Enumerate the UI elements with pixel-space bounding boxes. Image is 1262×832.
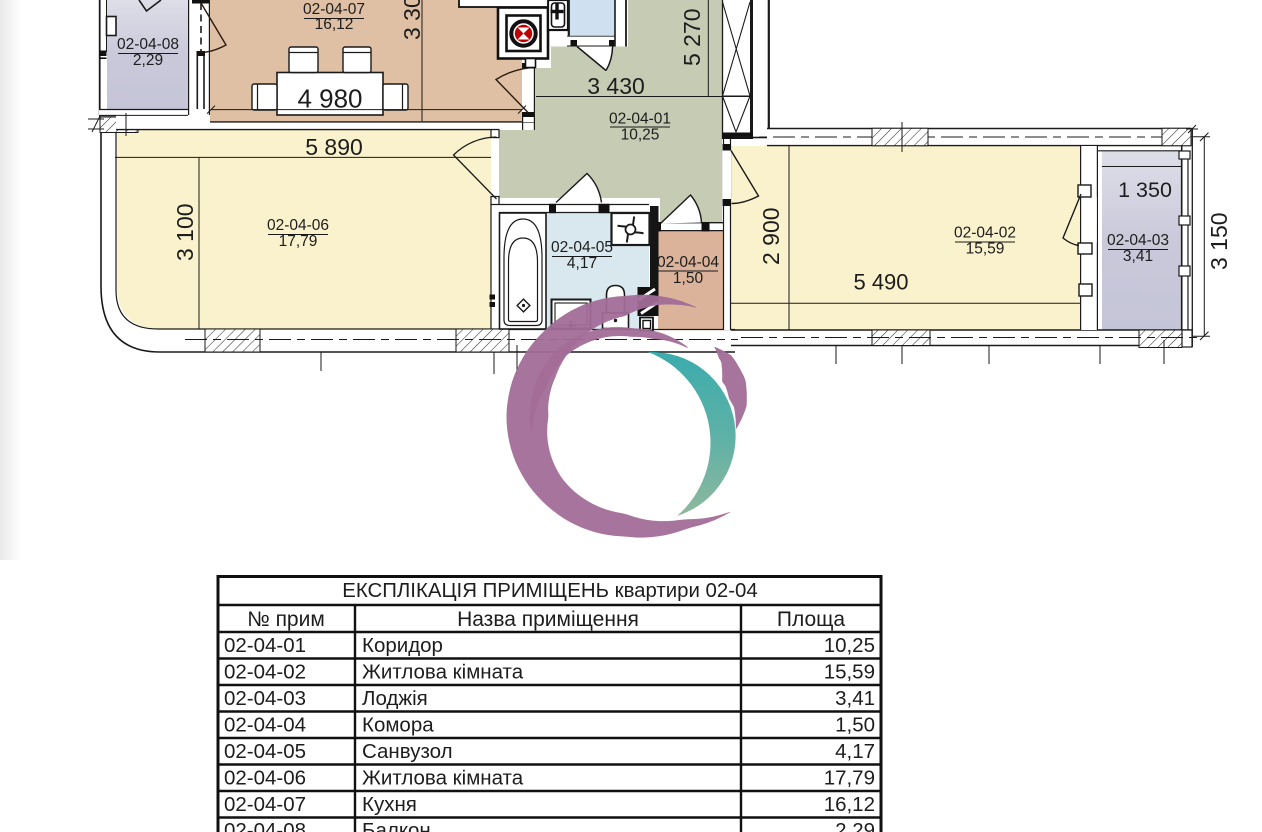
svg-text:2 900: 2 900 [758,207,784,265]
svg-text:02-04-06: 02-04-06 [267,217,329,234]
svg-text:02-04-03: 02-04-03 [1107,232,1169,249]
svg-text:3,41: 3,41 [835,687,875,710]
svg-text:02-04-02: 02-04-02 [954,225,1016,242]
svg-text:15,59: 15,59 [824,661,875,684]
svg-text:Назва приміщення: Назва приміщення [457,608,639,631]
svg-text:Житлова кімната: Житлова кімната [362,767,524,790]
svg-text:3,41: 3,41 [1123,248,1153,265]
svg-text:5 270: 5 270 [679,8,705,66]
svg-text:Балкон: Балкон [362,819,431,832]
svg-text:5 890: 5 890 [305,134,363,160]
svg-text:4,17: 4,17 [835,740,875,763]
svg-text:4 980: 4 980 [297,84,362,114]
svg-text:15,59: 15,59 [966,241,1005,258]
svg-text:Комора: Комора [362,714,434,737]
svg-text:16,12: 16,12 [824,793,875,816]
svg-text:02-04-03: 02-04-03 [224,687,306,710]
svg-text:2,29: 2,29 [835,819,875,832]
svg-text:5 490: 5 490 [853,270,908,295]
svg-text:1 350: 1 350 [1118,178,1172,202]
svg-text:17,79: 17,79 [279,233,318,250]
svg-text:02-04-06: 02-04-06 [224,767,306,790]
svg-text:02-04-07: 02-04-07 [224,793,306,816]
svg-text:Площа: Площа [777,608,846,631]
svg-text:02-04-04: 02-04-04 [657,254,719,271]
svg-text:17,79: 17,79 [824,767,875,790]
svg-text:02-04-04: 02-04-04 [224,714,306,737]
svg-text:Лоджія: Лоджія [362,687,428,710]
svg-text:1,50: 1,50 [835,714,875,737]
svg-text:№ прим: № прим [247,608,325,631]
svg-text:02-04-05: 02-04-05 [224,740,306,763]
svg-text:02-04-01: 02-04-01 [224,634,306,657]
svg-text:3 100: 3 100 [172,203,198,261]
svg-text:3 300: 3 300 [399,0,425,40]
svg-text:Житлова кімната: Житлова кімната [362,661,524,684]
svg-text:02-04-02: 02-04-02 [224,661,306,684]
svg-text:10,25: 10,25 [621,127,660,144]
svg-text:2,29: 2,29 [133,52,163,69]
svg-text:4,17: 4,17 [567,255,597,272]
svg-text:10,25: 10,25 [824,634,875,657]
svg-text:02-04-05: 02-04-05 [551,239,613,256]
svg-text:3 430: 3 430 [587,73,645,99]
svg-text:Кухня: Кухня [362,793,417,816]
svg-text:02-04-08: 02-04-08 [117,36,179,53]
svg-text:02-04-08: 02-04-08 [224,819,306,832]
svg-text:ЕКСПЛІКАЦІЯ ПРИМІЩЕНЬ квартири: ЕКСПЛІКАЦІЯ ПРИМІЩЕНЬ квартири 02-04 [342,580,757,602]
svg-text:02-04-01: 02-04-01 [609,111,671,128]
svg-text:Санвузол: Санвузол [362,740,453,763]
svg-text:1,50: 1,50 [673,270,704,287]
svg-text:3 150: 3 150 [1206,212,1232,270]
svg-text:Коридор: Коридор [362,634,443,657]
